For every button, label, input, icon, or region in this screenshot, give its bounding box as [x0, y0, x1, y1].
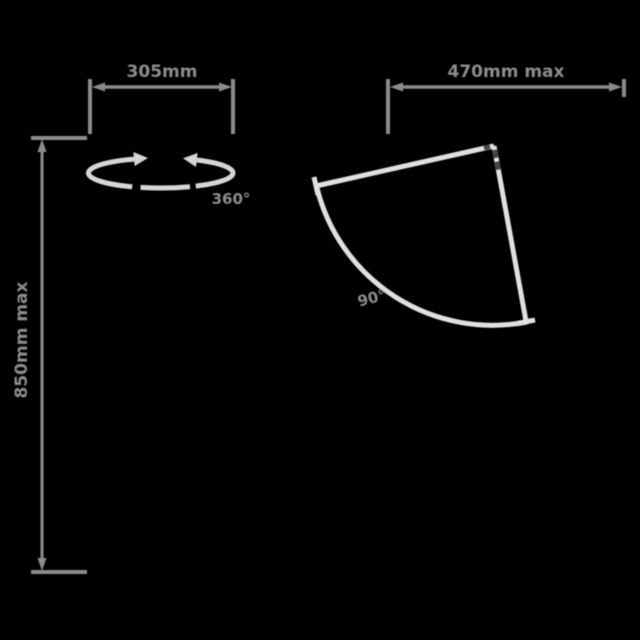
fold-arm-end-tick-left — [314, 177, 318, 195]
rotation-arc-right — [196, 160, 233, 186]
rotation-arrowhead-left-icon — [133, 152, 148, 166]
reach-dimension-label: 470mm max — [448, 62, 565, 82]
pivot-hinge-dash-icon — [497, 162, 498, 170]
width-dimension-label: 305mm — [127, 62, 198, 82]
fold-angle-label: 90° — [356, 286, 388, 311]
fold-arm-end-tick-bottom — [517, 320, 535, 324]
diagram-stage: 305mm 850mm max 360° 470mm max — [0, 0, 640, 640]
swivel-angle-label: 360° — [212, 190, 251, 208]
height-arrowhead-down-icon — [38, 558, 47, 571]
height-dimension: 850mm max — [12, 138, 87, 572]
rotation-arrowhead-right-icon — [183, 153, 198, 167]
width-dimension: 305mm — [90, 62, 233, 134]
rotation-arc-bottom — [141, 187, 191, 188]
rotation-arc-left — [88, 159, 134, 187]
fold-arc-figure: 90° — [314, 146, 535, 325]
fold-sweep-arc — [317, 188, 527, 325]
height-arrowhead-up-icon — [38, 139, 47, 152]
dimension-diagram-canvas: 305mm 850mm max 360° 470mm max — [0, 0, 640, 640]
height-dimension-label: 850mm max — [12, 281, 32, 398]
reach-dimension: 470mm max — [388, 62, 624, 134]
reach-arrowhead-right-icon — [609, 83, 622, 92]
reach-arrowhead-left-icon — [390, 83, 403, 92]
pivot-hinge-dash-icon — [484, 147, 490, 149]
pivot-hinge-dash-icon — [495, 150, 497, 158]
width-arrowhead-left-icon — [92, 83, 105, 92]
width-arrowhead-right-icon — [219, 83, 232, 92]
fold-arm-upper-edge — [316, 146, 494, 186]
swivel-rotation-symbol: 360° — [88, 152, 250, 208]
fold-arm-right-edge — [494, 146, 526, 321]
